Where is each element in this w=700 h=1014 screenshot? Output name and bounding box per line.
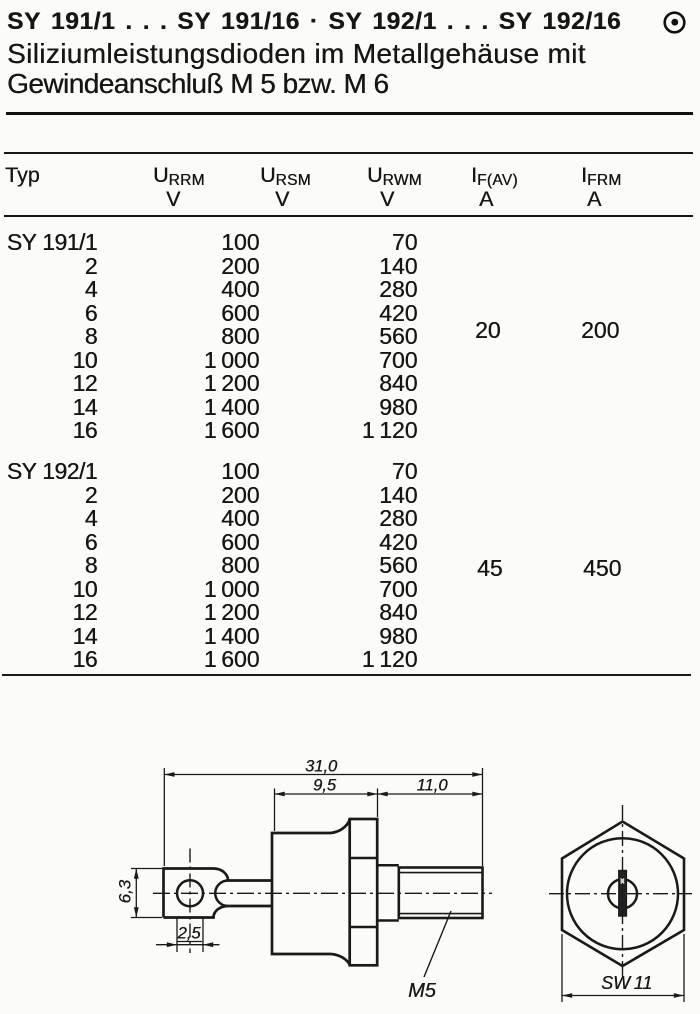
svg-text:6,3: 6,3 [116, 879, 135, 903]
svg-text:2,5: 2,5 [177, 925, 202, 943]
svg-text:SW 11: SW 11 [601, 973, 652, 993]
svg-text:M5: M5 [408, 980, 437, 1002]
svg-text:31,0: 31,0 [305, 758, 338, 776]
svg-text:11,0: 11,0 [417, 777, 449, 795]
svg-text:9,5: 9,5 [313, 777, 337, 795]
